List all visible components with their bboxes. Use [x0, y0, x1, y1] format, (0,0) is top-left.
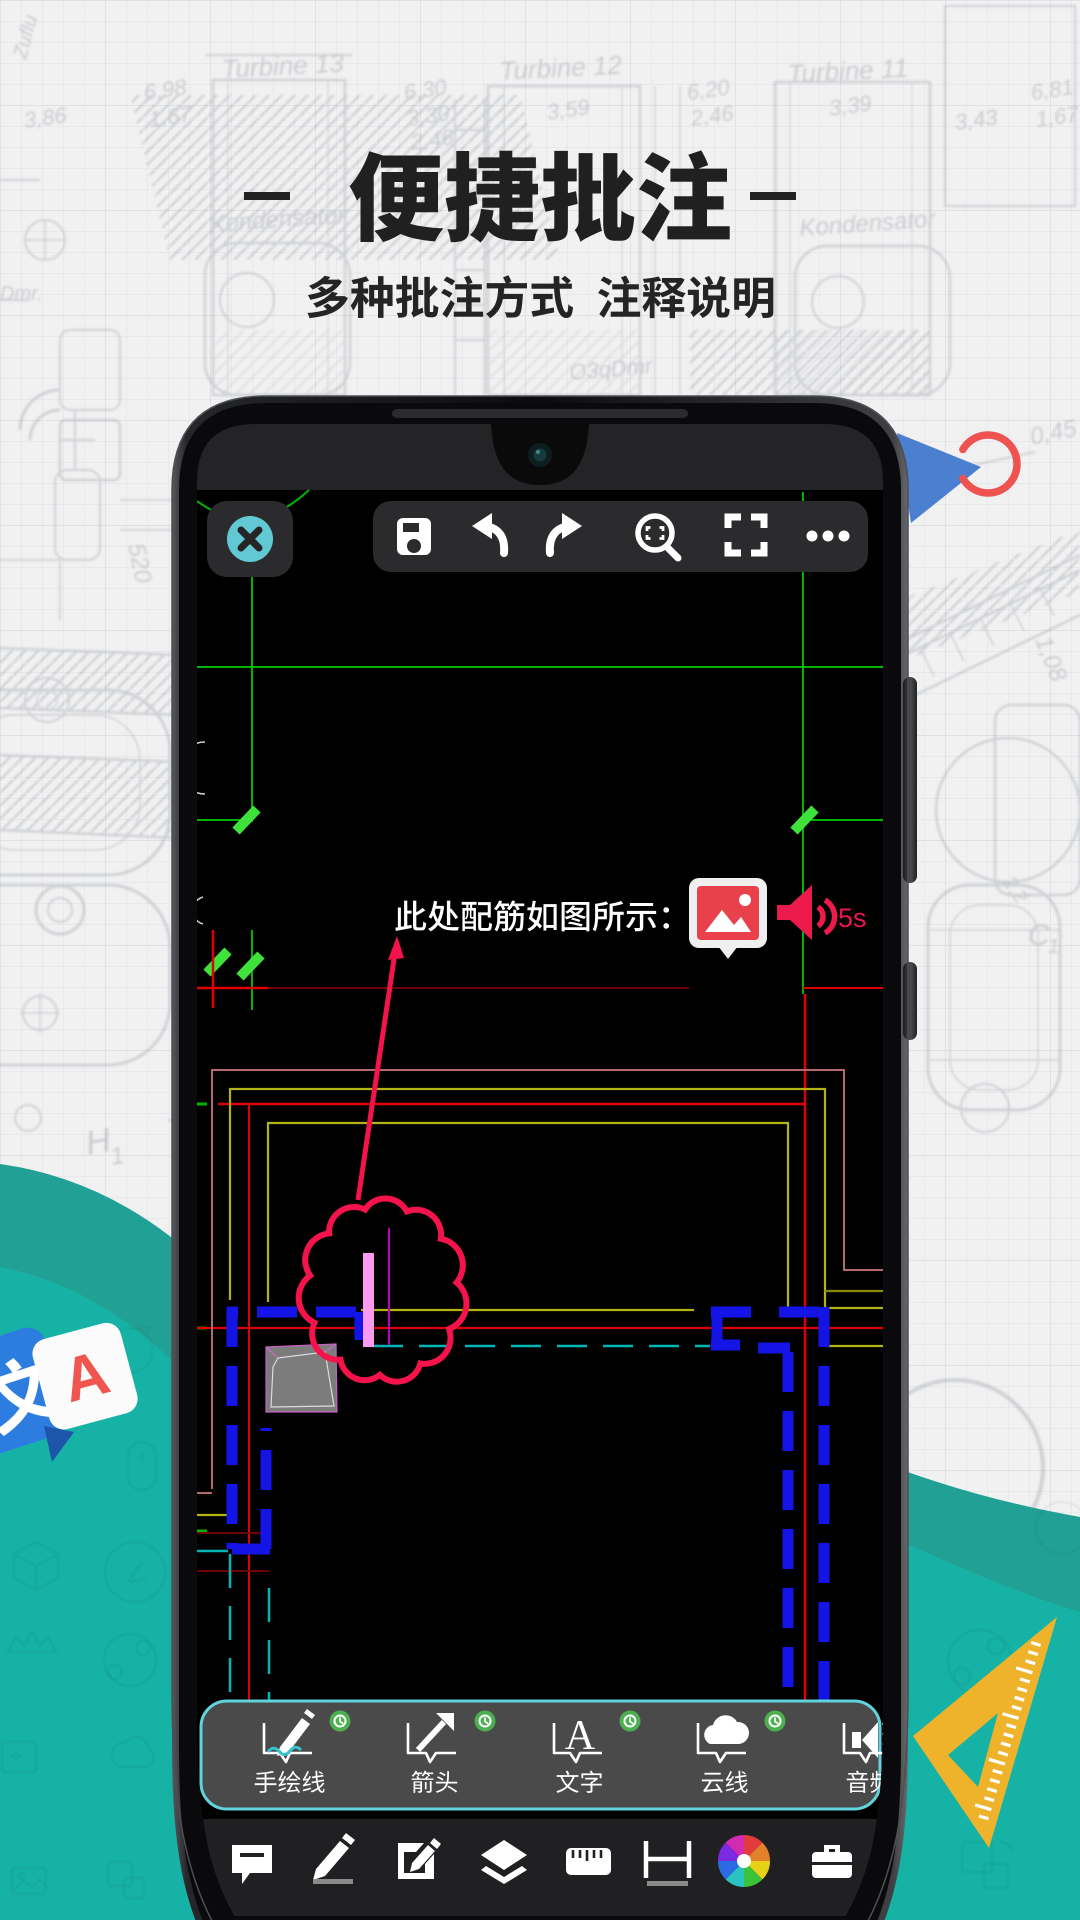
svg-text:Turbine 12: Turbine 12	[499, 50, 623, 86]
svg-text:Turbine 13: Turbine 13	[221, 48, 345, 84]
svg-text:Turbine 11: Turbine 11	[787, 53, 909, 89]
svg-text:C: C	[1028, 919, 1050, 952]
svg-text:1: 1	[1048, 936, 1059, 958]
svg-text:A: A	[565, 1713, 596, 1759]
svg-text:5s: 5s	[838, 903, 867, 933]
svg-text:Dmr.: Dmr.	[0, 283, 43, 305]
